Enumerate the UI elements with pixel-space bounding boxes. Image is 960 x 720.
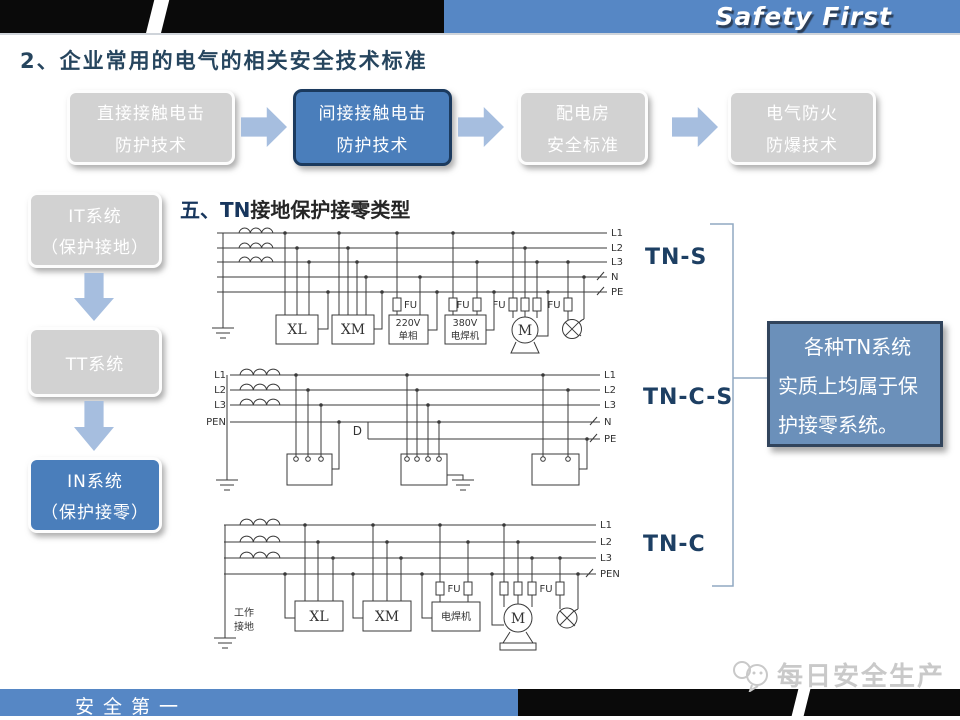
flow-box-line: 直接接触电击 (97, 99, 205, 124)
side-box-in-system: IN系统 （保护接零） (28, 457, 162, 533)
bus-label: N (604, 417, 611, 428)
bus-label: L2 (604, 385, 616, 396)
down-arrow-icon (74, 401, 114, 451)
flow-box-line: 防爆技术 (766, 131, 838, 156)
bus-label: L2 (214, 385, 226, 396)
down-arrow-icon (74, 273, 114, 321)
top-black-bar (0, 0, 444, 33)
footer-slogan: 安全第一 (75, 692, 187, 719)
load-label-220v: 220V (396, 318, 421, 329)
watermark-text: 每日安全生产 (777, 656, 945, 693)
fuse-label: FU (404, 300, 417, 311)
bus-label: L1 (600, 520, 612, 531)
load-label-xl: XL (309, 609, 328, 625)
side-box-line: TT系统 (66, 350, 124, 375)
flow-arrow-icon (241, 107, 287, 147)
flow-box-fire-explosion: 电气防火 防爆技术 (728, 90, 876, 165)
load-label-xm: XM (375, 609, 399, 625)
tnc-circuit-diagram: L1 L2 L3 PEN 工作 接地 FU FU X (204, 514, 640, 666)
tncs-junction-dots (294, 373, 589, 441)
side-box-line: （保护接零） (41, 498, 149, 523)
bus-label: N (611, 272, 618, 283)
fuse-label: FU (492, 300, 505, 311)
bus-label: L1 (611, 228, 623, 239)
load-label-220v: 单相 (398, 330, 417, 342)
tns-loads (276, 315, 582, 353)
split-point-label: D (353, 424, 362, 438)
bus-label: L2 (600, 537, 612, 548)
note-line: 实质上均属于保 (778, 367, 932, 406)
note-box: 各种TN系统 实质上均属于保 护接零系统。 (767, 321, 943, 447)
working-ground-label: 工作 (234, 607, 254, 619)
fuse-label: FU (539, 584, 552, 595)
bus-label: L3 (214, 400, 226, 411)
flow-box-line: 防护技术 (115, 131, 187, 156)
tncs-circuit-diagram: L1 L2 L3 PEN D L1 L2 L3 N PE (204, 362, 640, 510)
fuse-label: FU (447, 584, 460, 595)
load-label-xm: XM (341, 322, 365, 338)
flow-arrow-icon (458, 107, 504, 147)
heading-number: 五、 (180, 198, 220, 222)
side-box-line: IN系统 (67, 467, 123, 492)
tnc-loads (295, 601, 577, 650)
chat-bubbles-icon (730, 658, 772, 692)
note-line: 护接零系统。 (778, 406, 932, 445)
bus-label: PEN (600, 569, 620, 580)
heading-tn: TN (220, 198, 250, 222)
flow-box-indirect-contact: 间接接触电击 防护技术 (293, 89, 452, 166)
flow-arrow-icon (672, 107, 718, 147)
tns-circuit-diagram: L1 L2 L3 N PE FU FU FU FU (211, 221, 647, 363)
bus-label: L3 (611, 257, 623, 268)
tnc-junction-dots (283, 523, 580, 576)
fuse-label: FU (547, 300, 560, 311)
slide: Safety First 2、企业常用的电气的相关安全技术标准 直接接触电击 防… (0, 0, 960, 720)
load-label-xl: XL (287, 322, 306, 338)
side-box-line: IT系统 (68, 202, 121, 227)
load-label-380v: 380V (453, 318, 478, 329)
page-title: 五、TN接地保护接零类型 (180, 194, 410, 223)
bus-label: PE (604, 434, 616, 445)
section-title: 2、企业常用的电气的相关安全技术标准 (20, 45, 428, 75)
grouping-bracket (698, 216, 774, 596)
flow-box-power-room: 配电房 安全标准 (518, 90, 648, 165)
bus-label: PE (611, 287, 623, 298)
watermark: 每日安全生产 (730, 656, 945, 693)
flow-box-line: 配电房 (556, 99, 610, 124)
brand-title: Safety First (716, 2, 892, 31)
motor-label: M (518, 323, 532, 339)
side-box-it-system: IT系统 （保护接地） (28, 192, 162, 268)
bus-label: L2 (611, 243, 623, 254)
side-box-line: （保护接地） (41, 233, 149, 258)
bus-label: L3 (604, 400, 616, 411)
bus-label: PEN (206, 417, 226, 428)
heading-rest: 接地保护接零类型 (250, 198, 410, 222)
flow-box-line: 电气防火 (766, 99, 838, 124)
tncs-loads (287, 375, 587, 490)
note-line: 各种TN系统 (778, 328, 932, 367)
top-bar-shadow (0, 33, 960, 35)
load-label-welder: 电焊机 (441, 610, 471, 623)
flow-box-direct-contact: 直接接触电击 防护技术 (67, 90, 235, 165)
bus-label: L1 (604, 370, 616, 381)
footer-black-bar (518, 689, 960, 716)
bus-label: L1 (214, 370, 226, 381)
fuse-label: FU (456, 300, 469, 311)
flow-box-line: 防护技术 (337, 131, 409, 156)
footer-blue-bar: 安全第一 (0, 689, 518, 716)
bus-label: L3 (600, 553, 612, 564)
motor-label: M (511, 611, 525, 627)
flow-box-line: 安全标准 (547, 131, 619, 156)
working-ground-label: 接地 (234, 620, 254, 633)
flow-box-line: 间接接触电击 (319, 99, 427, 124)
side-box-tt-system: TT系统 (28, 327, 162, 397)
system-label-tnc: TN-C (643, 532, 706, 557)
load-label-380v: 电焊机 (451, 330, 480, 342)
